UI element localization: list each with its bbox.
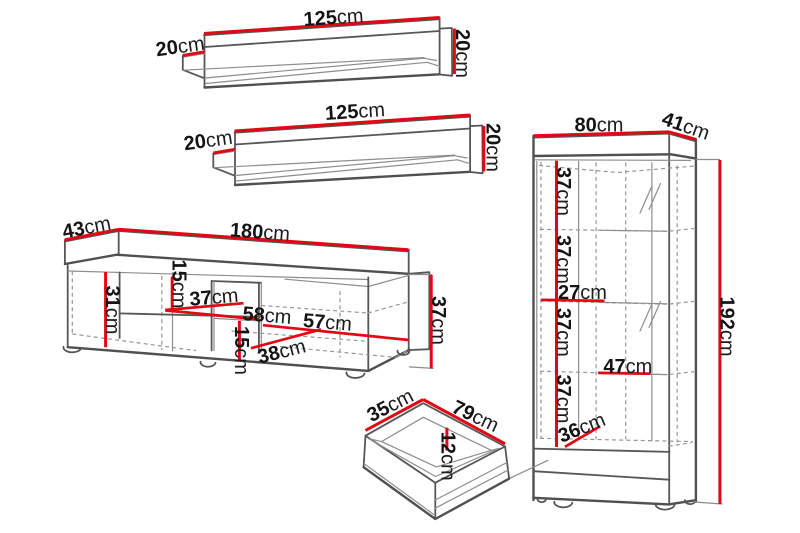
svg-text:125cm: 125cm [324,99,385,125]
svg-text:37cm: 37cm [552,308,574,357]
svg-text:20cm: 20cm [482,123,504,172]
svg-text:31cm: 31cm [101,286,123,335]
svg-text:15cm: 15cm [168,260,190,309]
svg-text:80cm: 80cm [575,115,624,137]
svg-text:37cm: 37cm [552,235,574,284]
svg-text:192cm: 192cm [716,296,738,356]
svg-text:20cm: 20cm [451,29,473,78]
svg-text:27cm: 27cm [558,282,607,304]
svg-text:15cm: 15cm [230,326,252,375]
svg-text:12cm: 12cm [436,432,458,481]
svg-text:37cm: 37cm [552,167,574,216]
svg-text:37cm: 37cm [552,375,574,424]
svg-text:47cm: 47cm [603,356,652,378]
svg-text:37cm: 37cm [189,285,240,311]
svg-text:37cm: 37cm [427,296,449,345]
svg-text:125cm: 125cm [303,5,364,31]
svg-text:180cm: 180cm [229,219,290,245]
